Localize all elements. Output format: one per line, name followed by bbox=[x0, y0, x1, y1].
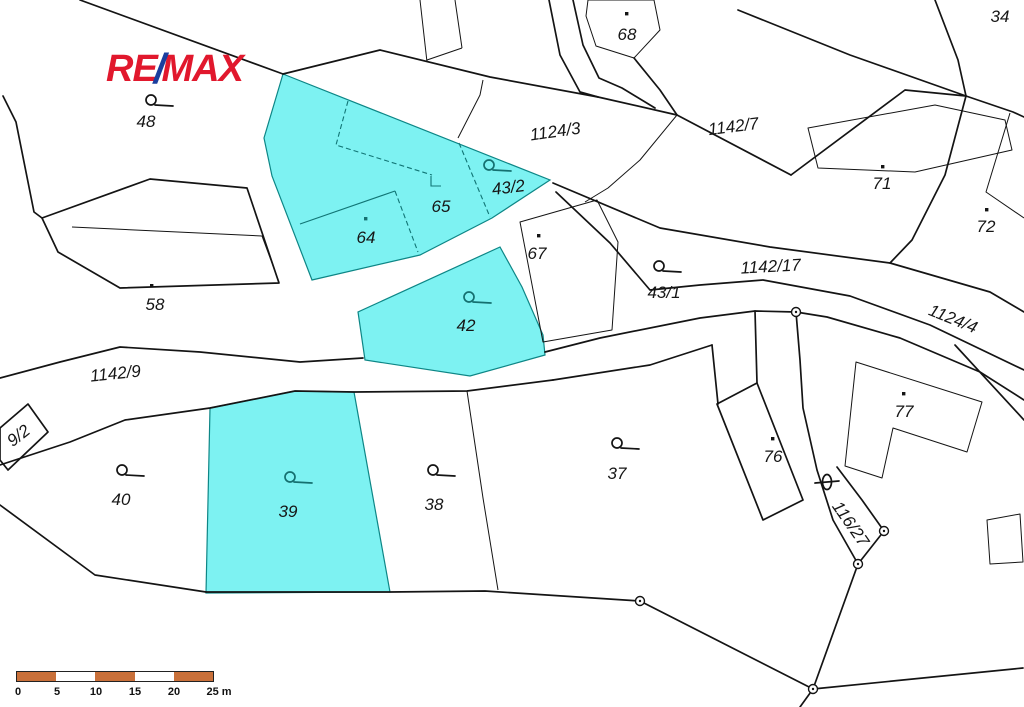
boundary-line bbox=[3, 96, 42, 218]
parcel-symbol-43-1 bbox=[654, 261, 681, 272]
building-dot-68 bbox=[625, 12, 628, 15]
road-1142-17-upper-edge bbox=[553, 183, 1024, 312]
scale-segment bbox=[17, 672, 56, 681]
parcel-label-64: 64 bbox=[357, 228, 376, 247]
parcel-label-39: 39 bbox=[279, 502, 298, 521]
parcel-symbol-38 bbox=[428, 465, 455, 476]
parcel-42-highlight bbox=[358, 247, 545, 376]
parcel-label-67: 67 bbox=[528, 244, 547, 263]
road-feeder-edge bbox=[890, 96, 966, 263]
scale-tick: 25 m bbox=[206, 686, 231, 698]
parcel-39-highlight bbox=[206, 391, 390, 593]
parcel-65-64-43-2-highlight bbox=[264, 74, 550, 280]
parcel-38-37-boundary bbox=[467, 391, 498, 590]
parcel-label-40: 40 bbox=[112, 490, 131, 509]
parcel-label-76: 76 bbox=[764, 447, 783, 466]
parcel-label-72: 72 bbox=[977, 217, 996, 236]
boundary-line bbox=[427, 48, 462, 60]
scale-tick: 20 bbox=[168, 686, 180, 698]
building-dots bbox=[150, 12, 988, 440]
scale-tick: 10 bbox=[90, 686, 102, 698]
parcel-symbol-48 bbox=[146, 95, 173, 106]
building-dot-72 bbox=[985, 208, 988, 211]
road-label-1124-4: 1124/4 bbox=[926, 301, 980, 338]
scale-tick: 0 bbox=[15, 686, 21, 698]
parcel-label-65: 65 bbox=[432, 197, 451, 216]
boundary-node bbox=[854, 560, 863, 569]
parcel-symbol-40 bbox=[117, 465, 144, 476]
parcel-label-48: 48 bbox=[137, 112, 156, 131]
scale-tick: 5 bbox=[54, 686, 60, 698]
building-77-outline bbox=[845, 362, 982, 478]
boundary-line bbox=[420, 0, 427, 62]
building-dot-77 bbox=[902, 392, 905, 395]
boundary-line bbox=[791, 90, 966, 175]
parcel-37-top-edge bbox=[553, 345, 712, 380]
parcel-label-77: 77 bbox=[895, 402, 914, 421]
building-dot-71 bbox=[881, 165, 884, 168]
scale-segment bbox=[135, 672, 174, 681]
boundary-node bbox=[880, 527, 889, 536]
parcel-label-58: 58 bbox=[146, 295, 165, 314]
parcel-label-9-2: 9/2 bbox=[3, 421, 34, 451]
boundary-node bbox=[809, 685, 818, 694]
parcel-label-42: 42 bbox=[457, 316, 476, 335]
building-58-inner-line bbox=[72, 227, 279, 282]
parcel-label-38: 38 bbox=[425, 495, 444, 514]
boundary-line bbox=[935, 0, 966, 96]
remax-logo: RE/MAX bbox=[106, 46, 243, 88]
boundary-node bbox=[792, 308, 801, 317]
boundary-node bbox=[636, 597, 645, 606]
boundary-line bbox=[755, 311, 757, 383]
building-dot-76 bbox=[771, 437, 774, 440]
road-line bbox=[955, 345, 1024, 420]
scale-segment bbox=[174, 672, 213, 681]
parcel-label-37: 37 bbox=[608, 464, 627, 483]
scale-segment bbox=[56, 672, 95, 681]
logo-slash: / bbox=[154, 45, 165, 92]
parcel-label-43-2: 43/2 bbox=[491, 176, 527, 199]
building-dot-64 bbox=[364, 217, 367, 220]
cadastral-map: 48 34 68 1124/3 1142/7 71 72 67 43/1 114… bbox=[0, 0, 1024, 707]
parcel-76-outline bbox=[717, 383, 803, 520]
road-label-1124-3: 1124/3 bbox=[529, 119, 582, 145]
road-label-1142-9: 1142/9 bbox=[89, 361, 142, 385]
scale-bar: 0 5 10 15 20 25 m bbox=[16, 670, 216, 706]
parcel-symbol-37 bbox=[612, 438, 639, 449]
logo-re: RE bbox=[106, 48, 157, 90]
boundary-line bbox=[0, 505, 206, 592]
logo-max: MAX bbox=[161, 48, 242, 90]
building-dot-67 bbox=[537, 234, 540, 237]
boundary-line bbox=[813, 564, 858, 689]
boundary-line bbox=[712, 345, 718, 404]
road-1142-9-upper-edge bbox=[0, 347, 363, 378]
boundary-line bbox=[813, 668, 1023, 689]
cadastral-map-screenshot: 48 34 68 1124/3 1142/7 71 72 67 43/1 114… bbox=[0, 0, 1024, 707]
parcel-label-71: 71 bbox=[873, 174, 892, 193]
boundary-line bbox=[986, 113, 1024, 218]
boundary-nodes bbox=[636, 308, 889, 694]
boundary-line bbox=[549, 0, 598, 97]
road-label-1142-7: 1142/7 bbox=[707, 114, 760, 139]
scale-segment bbox=[95, 672, 134, 681]
scale-bar-segments bbox=[16, 671, 214, 682]
parcel-label-68: 68 bbox=[618, 25, 637, 44]
parcel-label-43-1: 43/1 bbox=[647, 283, 680, 302]
parcel-label-34: 34 bbox=[991, 7, 1010, 26]
bottom-boundary bbox=[206, 591, 813, 689]
building-dot-58 bbox=[150, 284, 153, 287]
highlighted-parcels bbox=[206, 74, 550, 593]
boundary-line bbox=[458, 80, 483, 138]
parcel-58-outline bbox=[42, 179, 279, 288]
boundary-line bbox=[573, 0, 655, 108]
road-label-1142-17: 1142/17 bbox=[740, 255, 802, 277]
boundary-line bbox=[455, 0, 462, 48]
scale-tick: 15 bbox=[129, 686, 141, 698]
boundary-line bbox=[738, 10, 966, 96]
building-outline bbox=[987, 514, 1023, 564]
wedge-inner-edge bbox=[585, 115, 677, 202]
